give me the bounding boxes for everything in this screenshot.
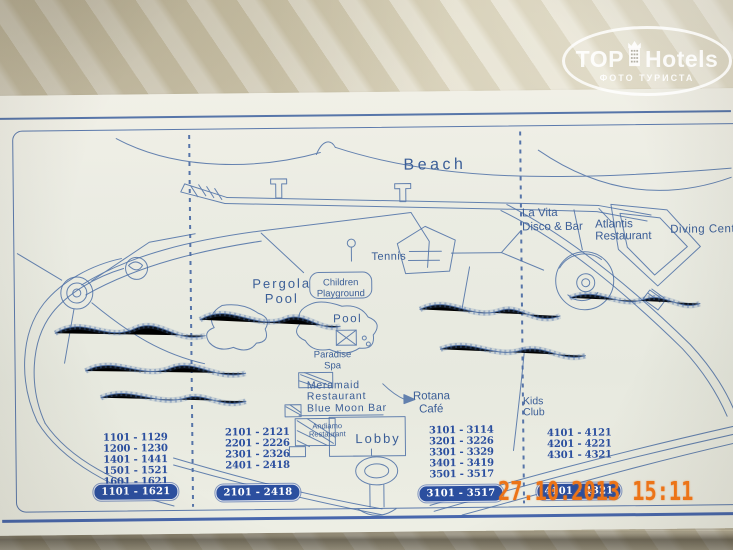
- logo-subtitle: ФОТО ТУРИСТА: [600, 73, 695, 83]
- label-tennis: Tennis: [371, 251, 406, 263]
- room-range-badge-3: 3101 - 3517: [419, 486, 502, 502]
- label-lobby: Lobby: [355, 431, 401, 446]
- label-children-playground: Children Playground: [312, 277, 370, 300]
- label-pergola-pool: Pergola Pool: [250, 276, 314, 307]
- label-rotana-cafe: Rotana Café: [413, 390, 450, 416]
- label-pool: Pool: [333, 313, 362, 325]
- logo-top-text: TOP: [576, 48, 624, 71]
- room-range-column-2: 2101 - 2121 2201 - 2226 2301 - 2326 2401…: [207, 428, 307, 473]
- hotel-building-icon: [625, 40, 644, 71]
- label-diving-center: Diving Center: [670, 223, 733, 236]
- label-blue-moon-bar: Blue Moon Bar: [307, 402, 387, 415]
- camera-timestamp: 27.10.2013 15:11: [498, 477, 693, 507]
- room-range-badge-2: 2101 - 2418: [216, 485, 299, 501]
- logo-hotels-text: Hotels: [645, 48, 718, 71]
- label-paradise-spa: Paradise Spa: [308, 349, 356, 372]
- room-range-column-4: 4101 - 4121 4201 - 4221 4301 - 4321: [529, 428, 629, 462]
- label-beach: Beach: [403, 156, 466, 175]
- room-range-badge-1: 1101 - 1621: [94, 484, 177, 500]
- photo-of-resort-map: Beach La Vita Disco & Bar Atlantis Resta…: [0, 0, 733, 550]
- label-andiamo-restaurant: Andiamo Restaurant: [301, 422, 353, 439]
- tophotels-watermark: TOP Hotels ФОТО ТУРИСТА: [562, 26, 732, 96]
- label-atlantis: Atlantis Restaurant: [595, 218, 652, 243]
- label-kids-club: Kids Club: [523, 396, 545, 418]
- label-la-vita: La Vita Disco & Bar: [522, 207, 583, 235]
- room-range-column-1: 1101 - 1129 1200 - 1230 1401 - 1441 1501…: [85, 433, 186, 489]
- label-meramaid-restaurant: Meramaid Restaurant: [307, 380, 367, 403]
- room-range-column-3: 3101 - 3114 3201 - 3226 3301 - 3329 3401…: [411, 425, 512, 481]
